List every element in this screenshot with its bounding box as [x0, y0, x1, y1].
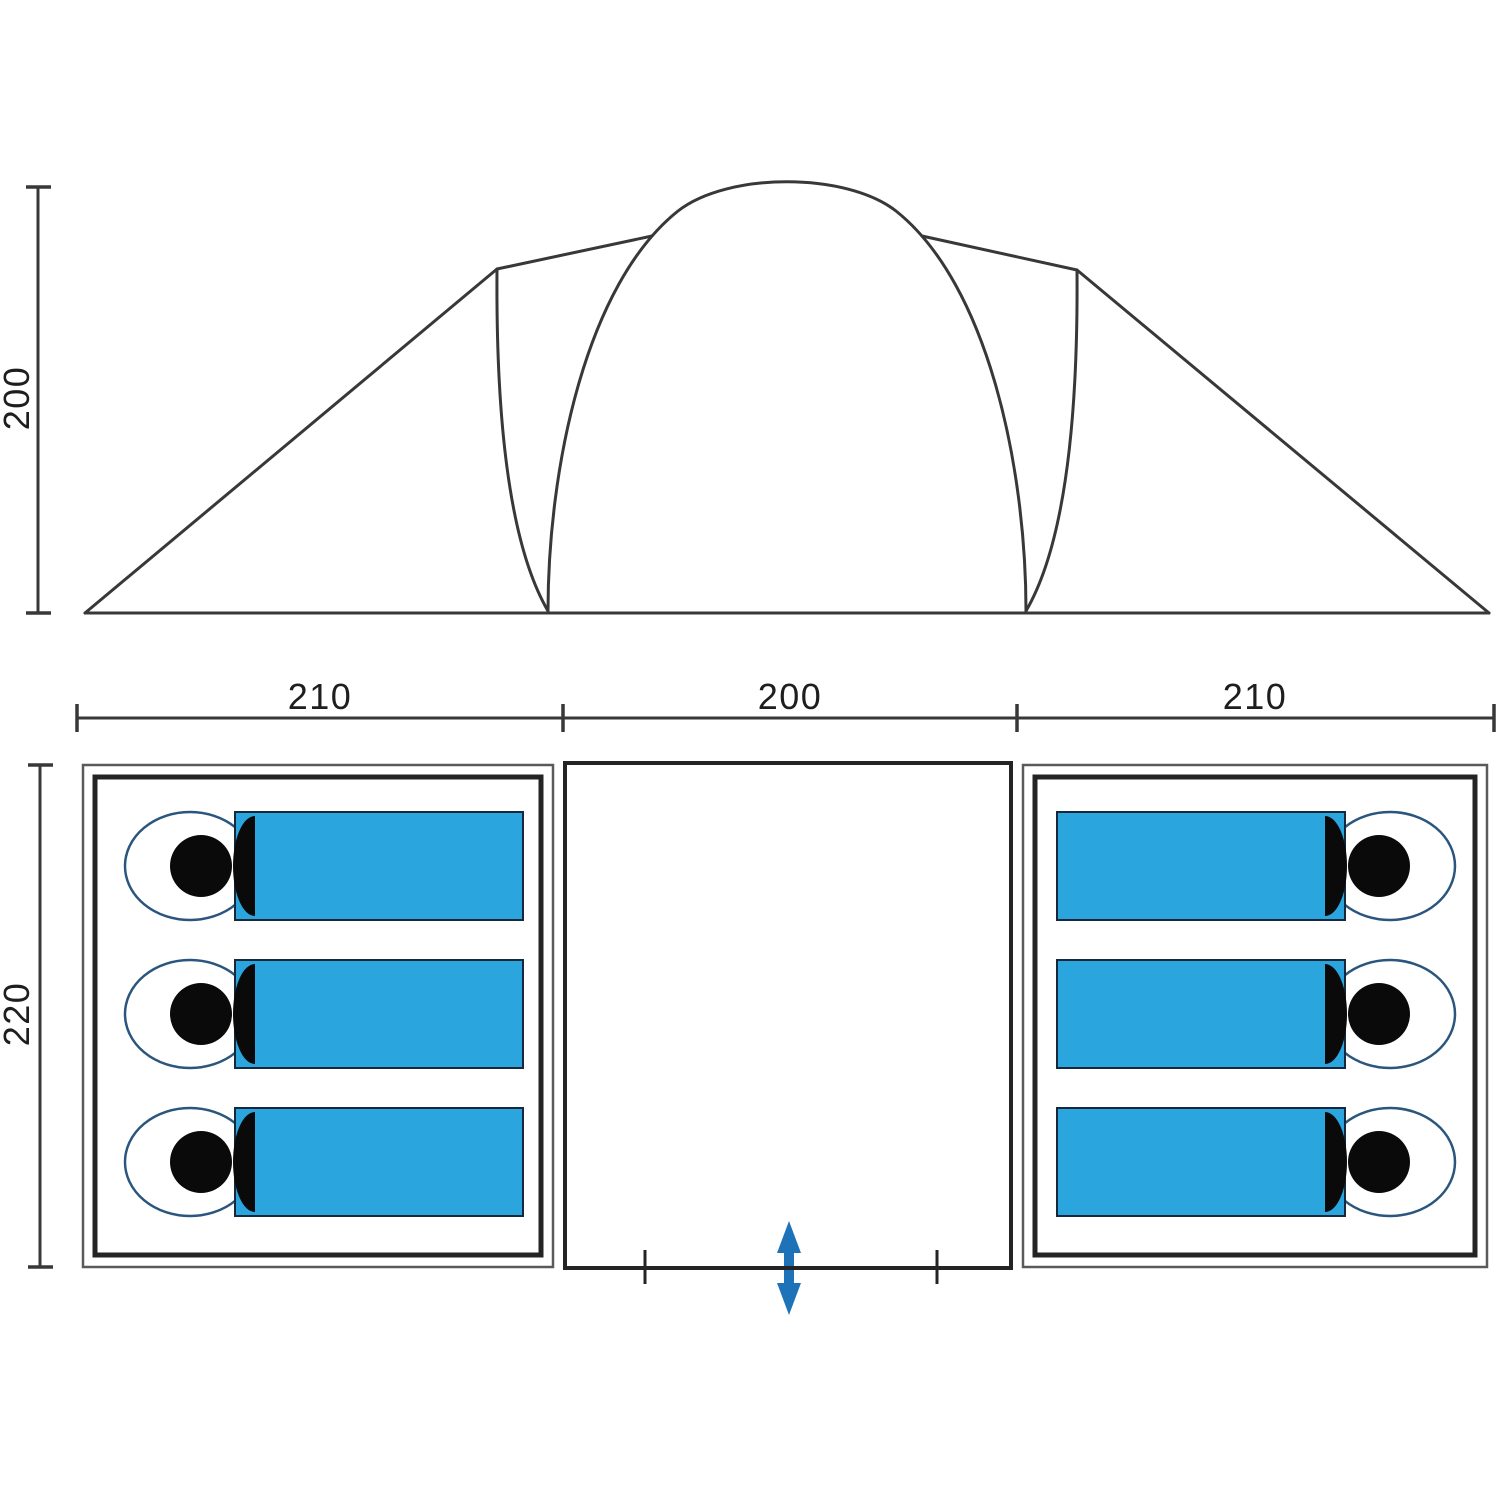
- sleeping-bag: [1057, 812, 1455, 920]
- sleeping-bag: [125, 1108, 523, 1216]
- width-dimension: 210 200 210: [77, 676, 1494, 732]
- tent-dimensions-diagram: 200 210 200 210: [0, 0, 1500, 1500]
- left-sleeping-cabin: [83, 765, 553, 1267]
- height-dimension: 200: [0, 187, 51, 613]
- sleeping-bag: [1057, 960, 1455, 1068]
- depth-dimension-label: 220: [0, 982, 37, 1047]
- sleeping-bag: [1057, 1108, 1455, 1216]
- left-cabin-sleeping-bags: [125, 812, 523, 1216]
- sleeping-bag-head: [170, 983, 232, 1045]
- sleeping-bag-head: [1348, 983, 1410, 1045]
- dome-arch: [548, 182, 1026, 611]
- middle-section-width-label: 200: [758, 676, 823, 717]
- diagram-svg: 200 210 200 210: [0, 0, 1500, 1500]
- sleeping-bag-body: [1057, 960, 1345, 1068]
- middle-section-wall: [565, 763, 1011, 1268]
- sleeping-bag: [125, 960, 523, 1068]
- sleeping-bag-body: [235, 1108, 523, 1216]
- tent-side-elevation: 200: [0, 182, 1489, 613]
- right-sleeping-cabin: [1023, 765, 1487, 1267]
- sleeping-bag-head: [1348, 835, 1410, 897]
- middle-living-section: [565, 763, 1011, 1315]
- right-cabin-width-label: 210: [1223, 676, 1288, 717]
- sleeping-bag: [125, 812, 523, 920]
- right-seam-curve: [1026, 270, 1077, 611]
- right-cabin-sleeping-bags: [1057, 812, 1455, 1216]
- height-dimension-label: 200: [0, 366, 37, 431]
- tent-floor-plan: 220: [0, 763, 1487, 1315]
- sleeping-bag-head: [1348, 1131, 1410, 1193]
- sleeping-bag-body: [1057, 1108, 1345, 1216]
- sleeping-bag-body: [1057, 812, 1345, 920]
- depth-dimension: 220: [0, 765, 53, 1267]
- left-cabin-width-label: 210: [288, 676, 353, 717]
- left-seam-curve: [497, 269, 548, 611]
- entrance-arrow-down: [777, 1270, 801, 1315]
- sleeping-bag-head: [170, 835, 232, 897]
- sleeping-bag-head: [170, 1131, 232, 1193]
- sleeping-bag-body: [235, 960, 523, 1068]
- sleeping-bag-body: [235, 812, 523, 920]
